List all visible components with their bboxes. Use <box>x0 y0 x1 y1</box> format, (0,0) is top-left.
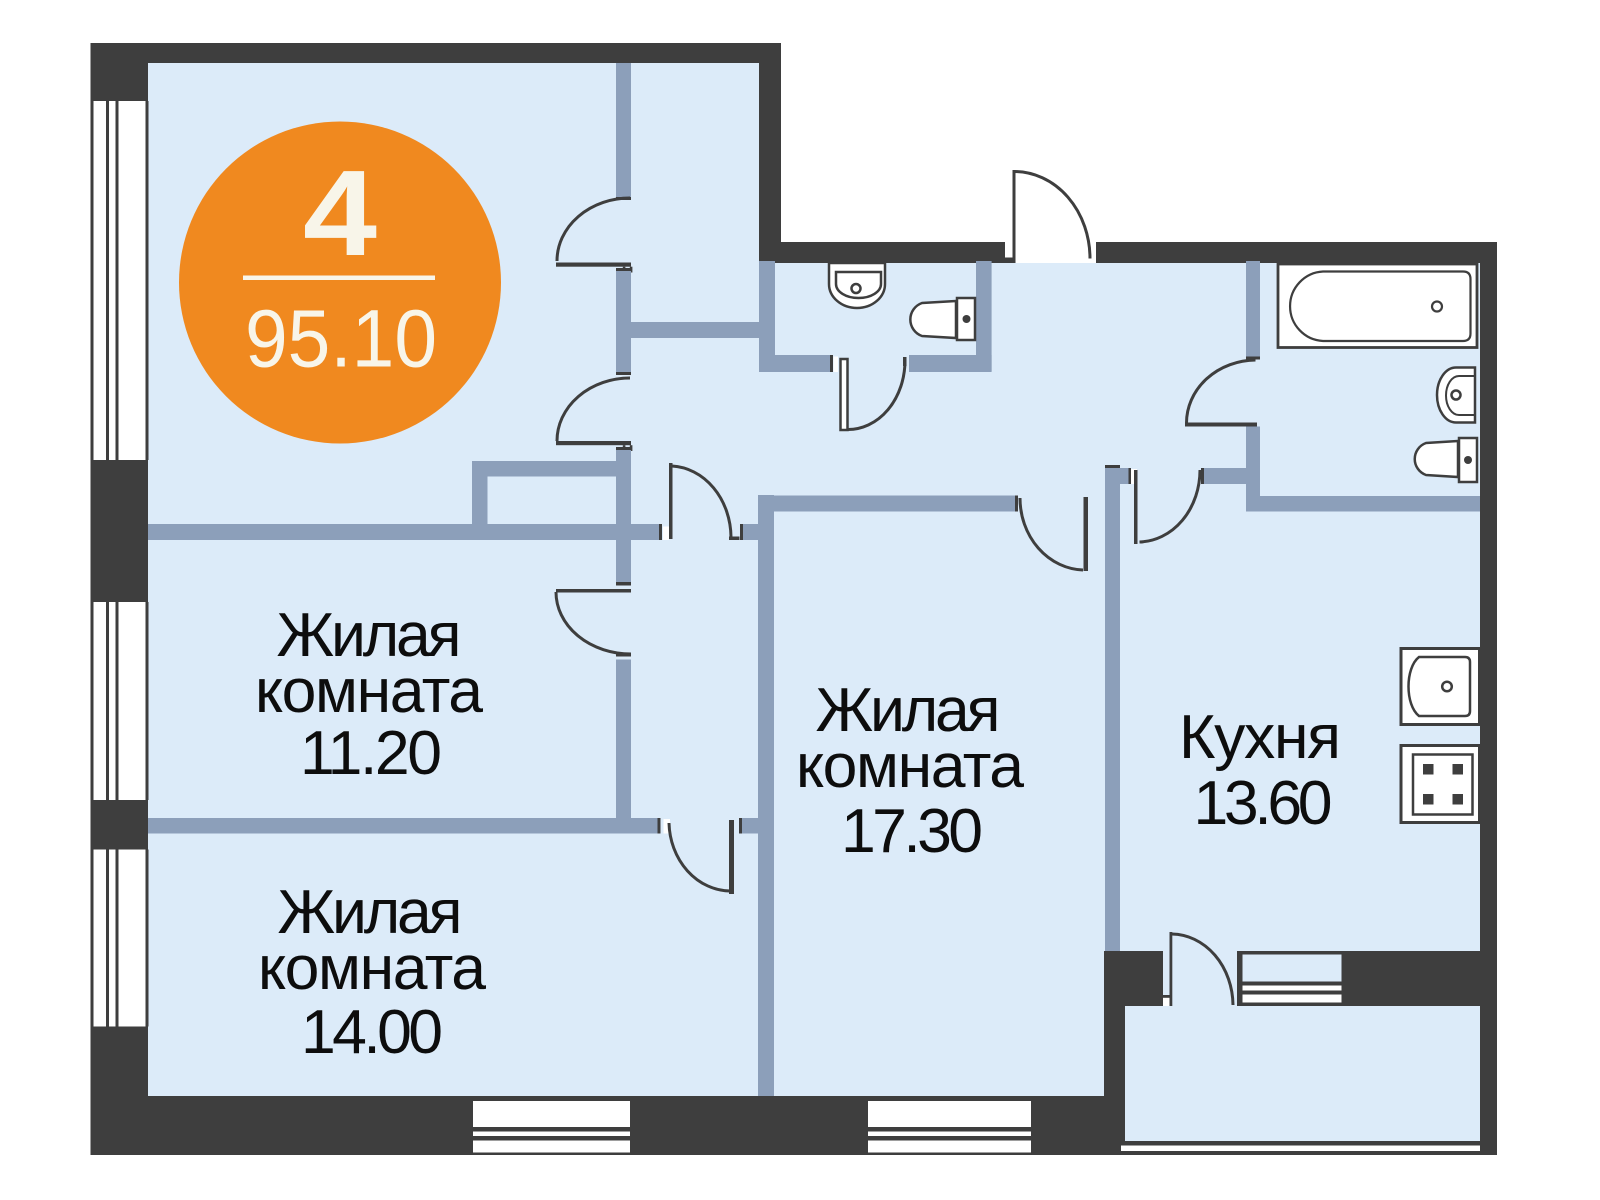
svg-text:95.10: 95.10 <box>245 294 437 385</box>
svg-text:комната: комната <box>255 656 483 726</box>
svg-text:Кухня: Кухня <box>1179 702 1341 772</box>
svg-text:4: 4 <box>303 145 377 281</box>
svg-text:11.20: 11.20 <box>300 718 442 788</box>
svg-text:13.60: 13.60 <box>1194 768 1333 838</box>
svg-text:комната: комната <box>796 731 1024 801</box>
svg-text:17.30: 17.30 <box>841 796 983 866</box>
svg-text:14.00: 14.00 <box>301 997 443 1067</box>
svg-text:комната: комната <box>258 933 486 1003</box>
